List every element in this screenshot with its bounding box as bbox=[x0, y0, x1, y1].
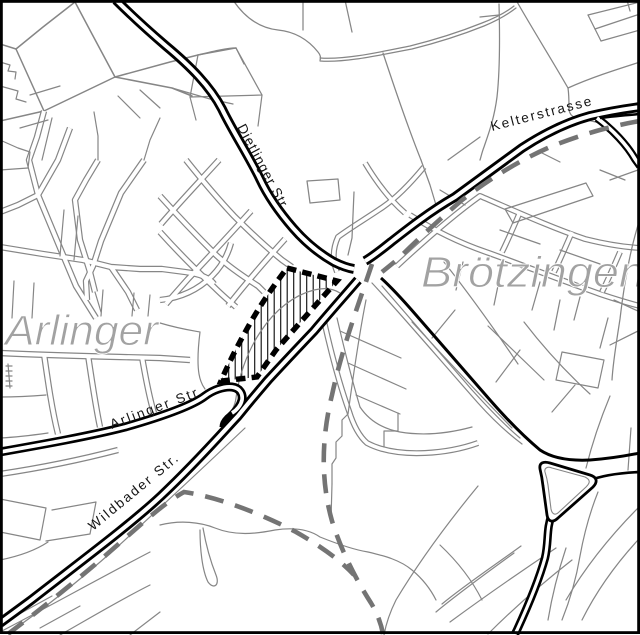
svg-text:Arlinger: Arlinger bbox=[2, 307, 160, 355]
svg-text:Brötzingen: Brötzingen bbox=[421, 248, 640, 297]
